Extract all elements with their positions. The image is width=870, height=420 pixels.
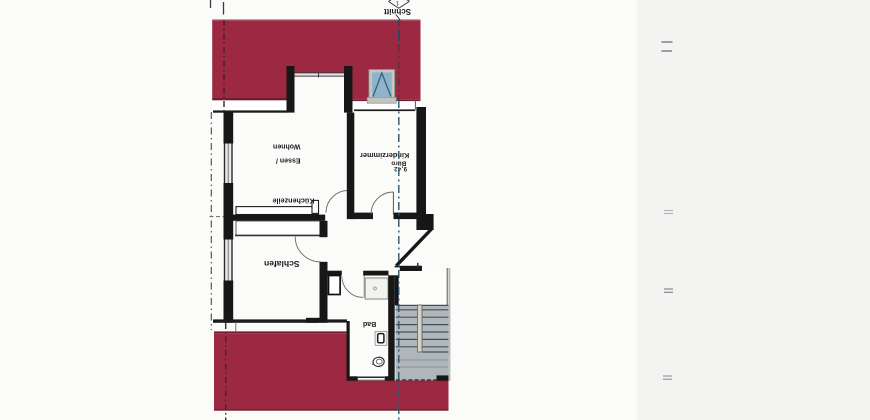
svg-text:Essen /: Essen / <box>276 156 301 163</box>
svg-text:Kinderzimmer: Kinderzimmer <box>360 151 409 160</box>
svg-text:Schnitt: Schnitt <box>384 7 411 16</box>
svg-text:1: 1 <box>396 0 399 6</box>
svg-text:Bad: Bad <box>363 320 376 327</box>
svg-text:Schlafen: Schlafen <box>264 259 299 269</box>
svg-text:9,42: 9,42 <box>393 165 407 171</box>
svg-text:Küchenzeile: Küchenzeile <box>273 197 315 206</box>
svg-text:Wohnen: Wohnen <box>273 142 300 149</box>
